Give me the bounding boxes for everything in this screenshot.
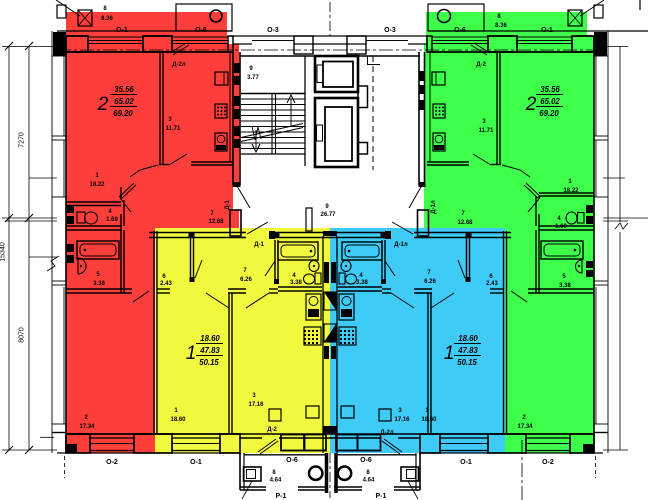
svg-text:4.64: 4.64 — [363, 478, 375, 484]
svg-text:О-1: О-1 — [541, 27, 553, 34]
svg-text:50.15: 50.15 — [457, 358, 477, 367]
svg-text:18.22: 18.22 — [563, 188, 579, 194]
svg-text:12.68: 12.68 — [208, 219, 224, 225]
svg-text:8.36: 8.36 — [101, 16, 113, 22]
svg-text:2.43: 2.43 — [160, 281, 172, 287]
svg-text:7270: 7270 — [19, 132, 26, 148]
svg-text:47.83: 47.83 — [457, 346, 478, 355]
svg-text:Д-2л: Д-2л — [380, 430, 394, 436]
svg-text:17.34: 17.34 — [79, 424, 95, 430]
svg-text:О-6: О-6 — [454, 27, 466, 34]
svg-text:4.64: 4.64 — [270, 478, 282, 484]
svg-text:1: 1 — [444, 343, 455, 364]
svg-text:О-6: О-6 — [286, 457, 298, 464]
svg-text:Д-2: Д-2 — [476, 62, 486, 68]
svg-text:65.02: 65.02 — [114, 97, 134, 106]
svg-text:О-3: О-3 — [384, 27, 396, 34]
svg-text:12.68: 12.68 — [457, 220, 473, 226]
svg-text:О-1: О-1 — [116, 27, 128, 34]
svg-text:Д-1л: Д-1л — [394, 242, 408, 248]
svg-text:18.60: 18.60 — [170, 417, 186, 423]
svg-text:69.20: 69.20 — [539, 109, 559, 118]
svg-text:8.36: 8.36 — [495, 23, 507, 29]
svg-text:Р-1: Р-1 — [276, 493, 287, 500]
svg-text:Д-2: Д-2 — [267, 427, 277, 433]
svg-text:3.38: 3.38 — [559, 283, 571, 289]
svg-text:Д-2л: Д-2л — [172, 62, 186, 68]
svg-text:50.15: 50.15 — [199, 358, 219, 367]
svg-text:65.02: 65.02 — [540, 97, 560, 106]
svg-text:3.38: 3.38 — [93, 281, 105, 287]
svg-text:15340: 15340 — [0, 242, 7, 262]
svg-text:18.22: 18.22 — [89, 182, 105, 188]
svg-text:2.43: 2.43 — [486, 281, 498, 287]
svg-text:18.60: 18.60 — [421, 417, 437, 423]
svg-text:8070: 8070 — [19, 327, 26, 343]
svg-text:6.26: 6.26 — [240, 277, 252, 283]
svg-text:1.69: 1.69 — [106, 217, 118, 223]
svg-text:О-1: О-1 — [190, 459, 202, 466]
svg-text:О-6: О-6 — [195, 27, 207, 34]
svg-text:69.20: 69.20 — [113, 109, 133, 118]
svg-text:3.38: 3.38 — [290, 280, 302, 286]
svg-text:18.60: 18.60 — [458, 334, 478, 343]
svg-text:Д-1: Д-1 — [254, 242, 264, 248]
svg-text:17.16: 17.16 — [248, 402, 264, 408]
svg-text:35.56: 35.56 — [540, 85, 560, 94]
svg-text:1.69: 1.69 — [555, 224, 567, 230]
svg-text:3.77: 3.77 — [247, 75, 259, 81]
svg-text:О-2: О-2 — [542, 459, 554, 466]
svg-text:3.38: 3.38 — [356, 280, 368, 286]
svg-text:1: 1 — [186, 343, 197, 364]
svg-text:11.71: 11.71 — [479, 128, 494, 134]
svg-text:11.71: 11.71 — [166, 126, 181, 132]
svg-text:17.34: 17.34 — [517, 424, 533, 430]
svg-text:26.77: 26.77 — [320, 212, 336, 218]
svg-text:Д-1: Д-1 — [225, 200, 231, 210]
svg-text:О-6: О-6 — [360, 457, 372, 464]
svg-text:О-3: О-3 — [267, 27, 279, 34]
svg-text:17.16: 17.16 — [394, 417, 410, 423]
svg-text:18.60: 18.60 — [200, 334, 220, 343]
svg-text:О-2: О-2 — [106, 459, 118, 466]
svg-text:Д-1л: Д-1л — [431, 200, 437, 214]
svg-text:6.26: 6.26 — [424, 279, 436, 285]
svg-text:2: 2 — [525, 94, 537, 115]
svg-text:О-1: О-1 — [460, 459, 472, 466]
svg-text:35.56: 35.56 — [114, 85, 134, 94]
svg-text:Р-1: Р-1 — [376, 493, 387, 500]
svg-text:2: 2 — [97, 94, 109, 115]
svg-text:47.83: 47.83 — [199, 346, 220, 355]
